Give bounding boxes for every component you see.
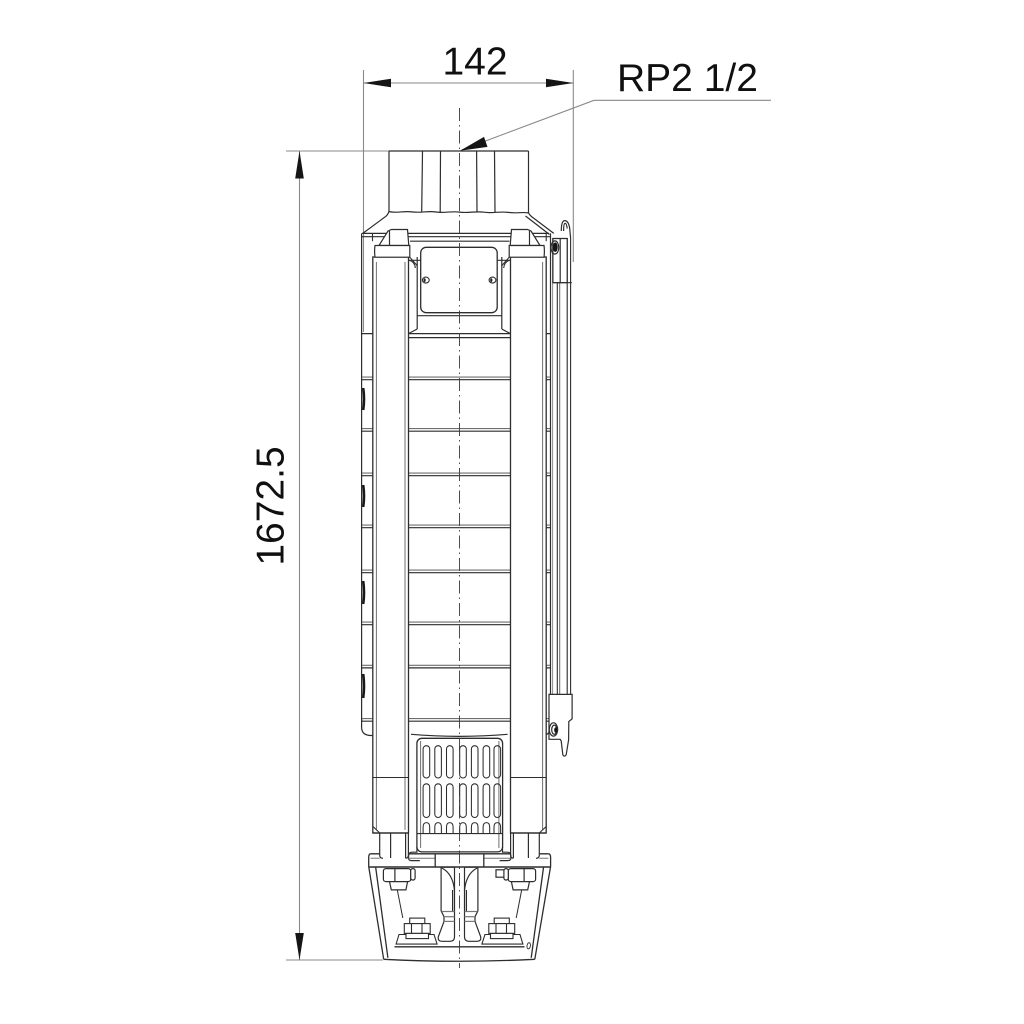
svg-text:1672.5: 1672.5 bbox=[250, 446, 293, 565]
svg-text:RP2 1/2: RP2 1/2 bbox=[617, 57, 758, 100]
svg-text:142: 142 bbox=[442, 41, 507, 84]
